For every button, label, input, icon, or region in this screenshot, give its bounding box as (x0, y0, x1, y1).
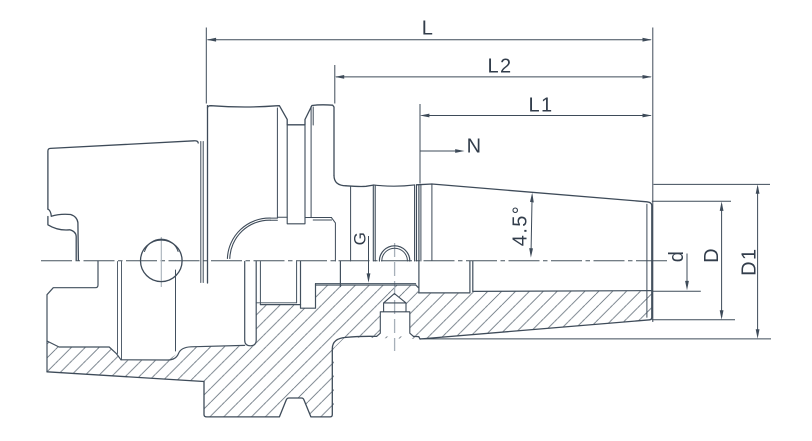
svg-text:G: G (350, 231, 369, 246)
svg-text:N: N (467, 136, 483, 158)
svg-text:L1: L1 (528, 95, 553, 117)
svg-text:d: d (666, 250, 688, 263)
svg-text:D: D (701, 247, 723, 263)
svg-text:D1: D1 (739, 248, 761, 276)
svg-text:L2: L2 (487, 56, 512, 78)
svg-text:L: L (422, 18, 435, 40)
svg-text:4.5°: 4.5° (509, 205, 531, 246)
